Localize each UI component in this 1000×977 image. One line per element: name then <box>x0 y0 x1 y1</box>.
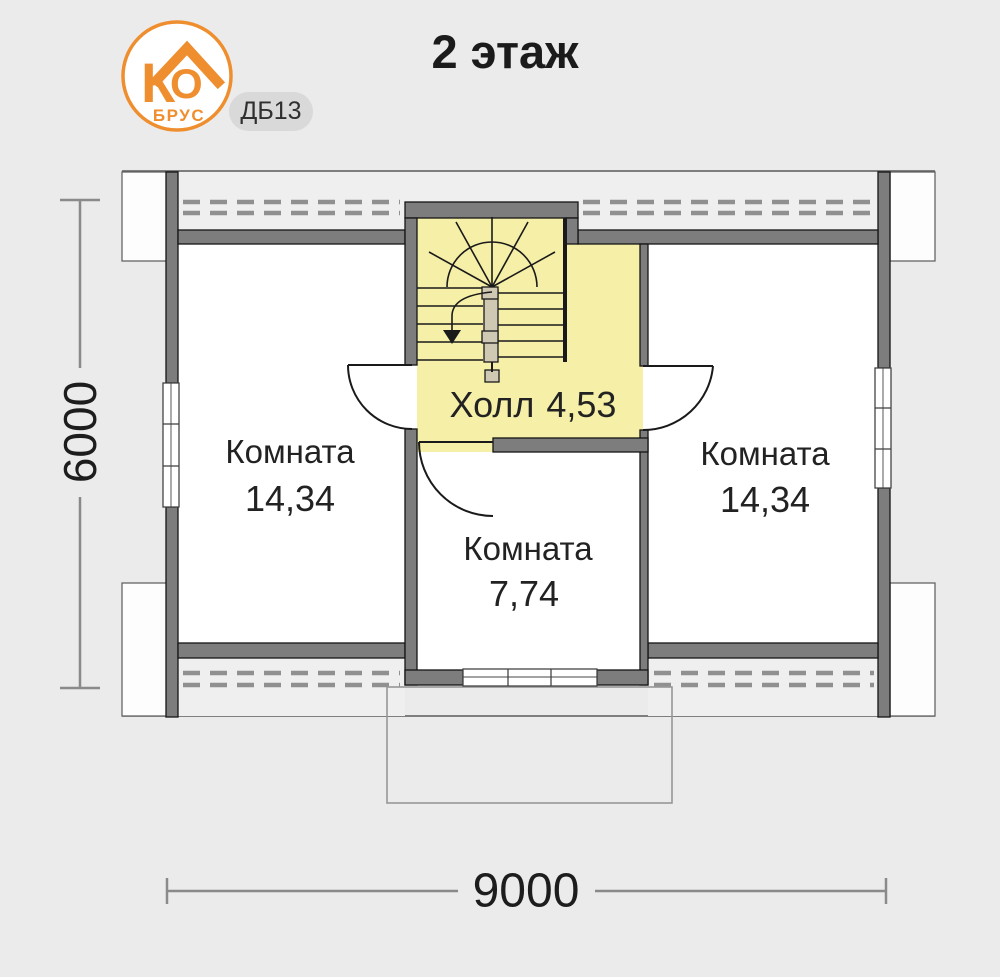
wall-right-room-lower <box>640 430 648 685</box>
left-room-name: Комната <box>225 433 355 470</box>
corner-pier-top-left <box>122 172 167 261</box>
floor-plan: Комната 14,34 Комната 14,34 Комната 7,74… <box>0 0 1000 977</box>
wall-bottom-room-bottom-right <box>597 670 648 685</box>
stair-right-wall <box>566 218 578 244</box>
wall-bottom-left-segment <box>178 643 405 658</box>
wall-bottom-right-segment <box>648 643 878 658</box>
brand-logo: К О БРУС <box>119 18 235 134</box>
wall-bottom-room-bottom-left <box>405 670 463 685</box>
corner-pier-bottom-left <box>122 583 167 716</box>
page: Комната 14,34 Комната 14,34 Комната 7,74… <box>0 0 1000 977</box>
left-room-area: 14,34 <box>245 478 335 519</box>
dimension-horizontal: 9000 <box>167 865 886 918</box>
window-bottom <box>463 669 597 686</box>
wall-left-lower <box>166 507 178 717</box>
right-room-area: 14,34 <box>720 479 810 520</box>
bottom-room-name: Комната <box>463 530 593 567</box>
corner-pier-bottom-right <box>890 583 935 716</box>
wall-right-room-upper <box>640 244 648 366</box>
wall-left-upper <box>166 172 178 383</box>
wall-right-upper <box>878 172 890 368</box>
wall-right-lower <box>878 488 890 717</box>
bottom-room-area: 7,74 <box>489 573 559 614</box>
wall-top-right-segment <box>578 230 878 244</box>
balcony-outline <box>387 687 672 803</box>
corner-pier-top-right <box>890 172 935 261</box>
dimension-horizontal-value: 9000 <box>473 865 580 918</box>
wall-bottom-room-top <box>493 438 648 452</box>
right-room-name: Комната <box>700 435 830 472</box>
stair-bump-top-wall <box>405 202 578 218</box>
house-logo-icon: К О БРУС <box>119 18 235 134</box>
dimension-vertical: 6000 <box>54 200 106 688</box>
project-badge: ДБ13 <box>229 92 313 131</box>
window-left <box>163 383 179 507</box>
wall-left-room-divider <box>405 429 417 685</box>
stair-left-wall <box>405 218 417 365</box>
dimension-vertical-value: 6000 <box>54 381 106 483</box>
wall-top-left-segment <box>178 230 405 244</box>
floor-title: 2 этаж <box>350 24 660 79</box>
logo-letter-o: О <box>170 60 203 107</box>
window-right <box>875 368 891 488</box>
hall-label: Холл4,53 <box>450 384 617 425</box>
logo-brand-name: БРУС <box>153 106 205 125</box>
